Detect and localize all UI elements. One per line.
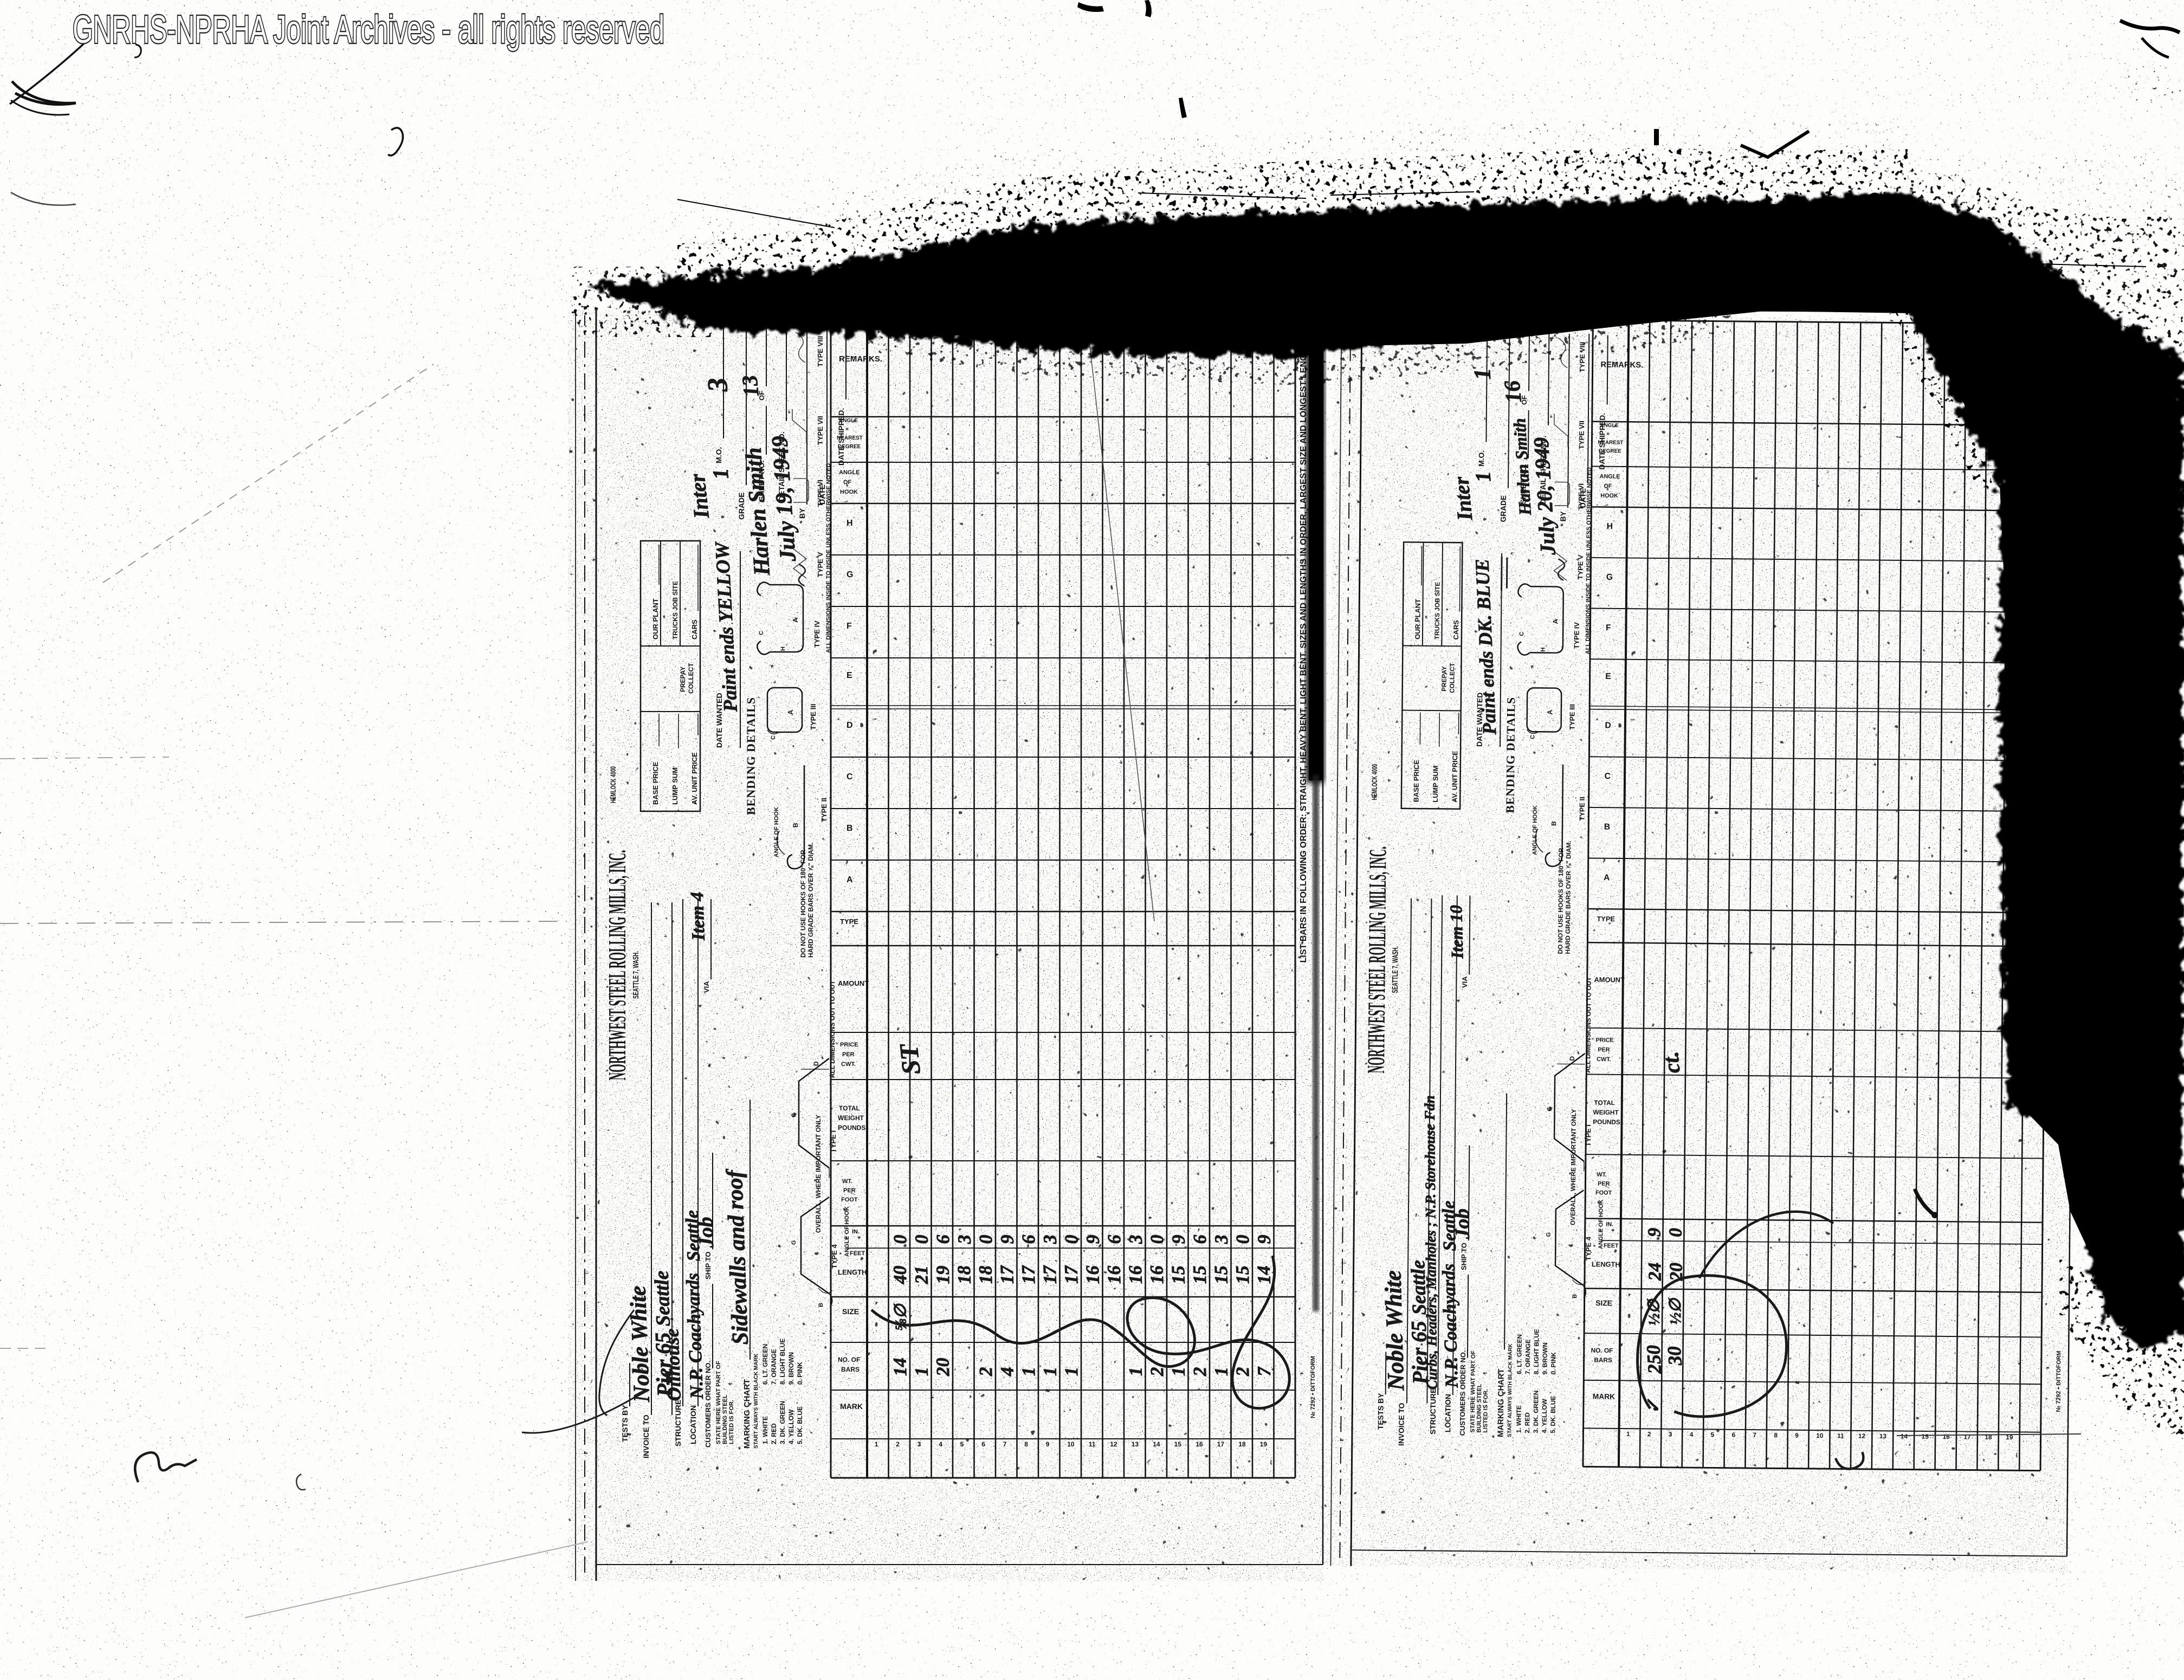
svg-text:9: 9	[1254, 1235, 1275, 1244]
svg-text:16: 16	[1499, 379, 1526, 404]
svg-text:14: 14	[890, 1358, 910, 1377]
svg-text:14: 14	[1254, 1265, 1275, 1284]
svg-text:1: 1	[1211, 1367, 1232, 1377]
svg-text:16: 16	[1147, 1265, 1167, 1284]
svg-text:4: 4	[997, 1367, 1018, 1377]
svg-text:0: 0	[1665, 1227, 1685, 1237]
svg-text:1: 1	[1168, 1367, 1189, 1377]
svg-text:16: 16	[1083, 1265, 1103, 1284]
svg-text:15: 15	[1190, 1265, 1210, 1284]
svg-text:16: 16	[1126, 1265, 1146, 1284]
svg-text:18: 18	[954, 1265, 975, 1284]
svg-text:9: 9	[1644, 1227, 1664, 1237]
svg-text:15: 15	[1211, 1265, 1232, 1284]
svg-text:0: 0	[1147, 1235, 1168, 1244]
svg-text:3: 3	[1040, 1235, 1061, 1245]
svg-text:ct.: ct.	[1658, 1050, 1685, 1074]
svg-text:2: 2	[1190, 1367, 1211, 1377]
svg-text:9: 9	[1168, 1235, 1189, 1244]
svg-text:ST: ST	[894, 1042, 926, 1076]
svg-text:N.P. Coachyards: N.P. Coachyards	[1439, 1263, 1462, 1388]
svg-text:21: 21	[912, 1265, 932, 1285]
svg-text:15: 15	[1232, 1265, 1253, 1284]
svg-text:18: 18	[975, 1265, 996, 1284]
svg-text:0: 0	[912, 1235, 932, 1244]
svg-text:1: 1	[912, 1367, 932, 1377]
svg-text:17: 17	[1061, 1264, 1082, 1284]
svg-text:1: 1	[1062, 1367, 1082, 1377]
svg-text:9: 9	[997, 1235, 1018, 1244]
svg-text:6: 6	[1019, 1235, 1039, 1244]
svg-text:3: 3	[1126, 1235, 1146, 1245]
svg-text:17: 17	[1018, 1264, 1039, 1284]
svg-text:20: 20	[933, 1358, 953, 1377]
svg-text:3: 3	[1211, 1235, 1232, 1245]
svg-text:1: 1	[1469, 367, 1496, 381]
svg-text:6: 6	[1104, 1235, 1125, 1244]
svg-text:Seattle: Seattle	[650, 1270, 675, 1327]
svg-text:0: 0	[890, 1235, 911, 1244]
svg-text:1: 1	[1040, 1367, 1061, 1377]
svg-text:1: 1	[1471, 470, 1496, 483]
svg-text:2: 2	[1233, 1367, 1253, 1377]
svg-text:1: 1	[1126, 1367, 1146, 1377]
svg-text:GNRHS-NPRHA Joint Archives - a: GNRHS-NPRHA Joint Archives - all rights …	[73, 8, 664, 51]
svg-text:Item 10: Item 10	[1446, 904, 1467, 959]
svg-text:30: 30	[1663, 1346, 1686, 1367]
svg-text:17: 17	[1040, 1264, 1061, 1284]
svg-text:6: 6	[933, 1235, 954, 1244]
svg-text:9: 9	[1083, 1235, 1103, 1244]
svg-text:Item 4: Item 4	[687, 891, 709, 941]
svg-text:3: 3	[702, 377, 734, 393]
svg-text:0: 0	[976, 1235, 997, 1244]
svg-text:Job: Job	[1451, 1208, 1474, 1239]
svg-text:0: 0	[1062, 1235, 1082, 1244]
svg-text:Oilhouse: Oilhouse	[661, 1328, 685, 1401]
svg-text:13: 13	[737, 374, 764, 398]
svg-text:2: 2	[1147, 1367, 1168, 1377]
svg-text:17: 17	[997, 1264, 1018, 1284]
svg-text:6: 6	[1190, 1235, 1211, 1244]
svg-text:24: 24	[1645, 1262, 1665, 1281]
svg-text:2: 2	[976, 1367, 997, 1377]
svg-text:40: 40	[890, 1265, 910, 1285]
svg-text:Curbs, Headers, Manholes ; N.P: Curbs, Headers, Manholes ; N.P. Storehou…	[1421, 1095, 1440, 1390]
svg-text:½∅: ½∅	[1666, 1297, 1684, 1325]
svg-text:16: 16	[1104, 1265, 1125, 1284]
svg-text:Job: Job	[694, 1217, 718, 1249]
svg-text:3: 3	[954, 1235, 975, 1245]
svg-text:15: 15	[1168, 1265, 1189, 1284]
svg-text:1: 1	[1019, 1367, 1039, 1377]
svg-text:0: 0	[1233, 1235, 1253, 1244]
svg-text:⅝∅: ⅝∅	[891, 1302, 910, 1331]
svg-text:Noble White: Noble White	[1380, 1270, 1409, 1391]
svg-text:250: 250	[1642, 1344, 1665, 1375]
svg-text:19: 19	[933, 1265, 953, 1284]
